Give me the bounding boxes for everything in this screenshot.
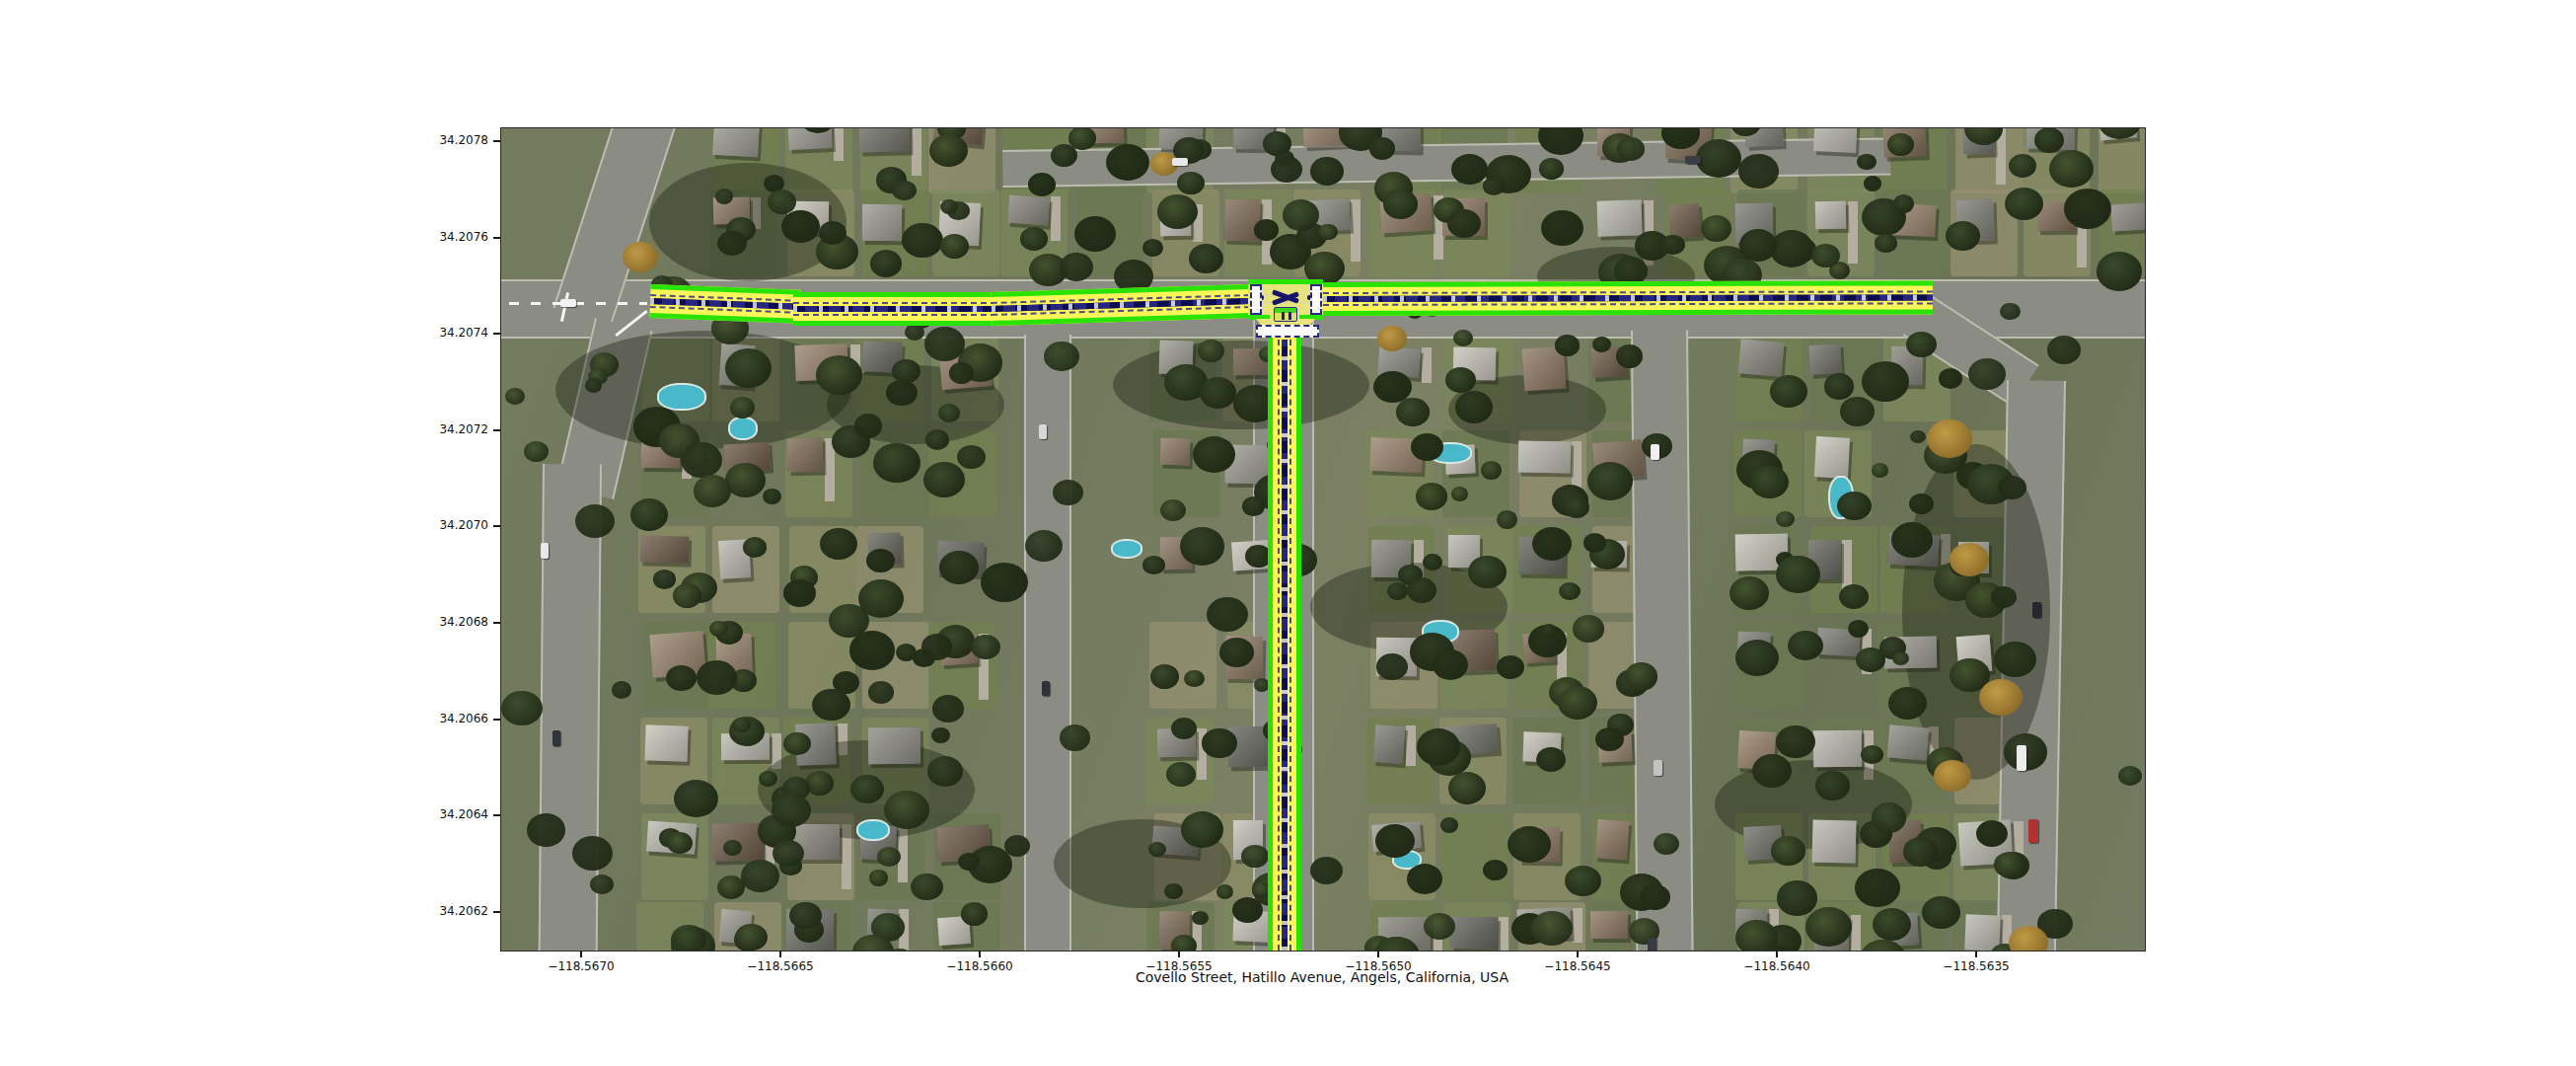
tree <box>1770 375 1807 407</box>
tree <box>1640 884 1669 910</box>
tree <box>849 631 896 670</box>
house-roof <box>1668 203 1701 239</box>
tree <box>2064 189 2111 229</box>
tree <box>820 528 856 560</box>
y-tick-label: 34.2066 <box>400 712 488 725</box>
house-roof <box>1811 820 1856 865</box>
tree <box>1166 762 1196 788</box>
lane-edge-line <box>1289 320 1291 951</box>
autumn-tree <box>1927 419 1972 458</box>
tree <box>1219 638 1254 667</box>
tree <box>1060 724 1090 751</box>
tree <box>1198 340 1224 362</box>
tree <box>1468 556 1507 588</box>
tree <box>1148 842 1166 857</box>
stop-bar-south <box>1256 325 1319 338</box>
swimming-pool <box>856 819 890 841</box>
house-roof <box>1590 910 1628 938</box>
y-tick-mark <box>493 140 500 142</box>
tree <box>1142 239 1163 257</box>
x-tick-mark <box>580 951 582 957</box>
tree <box>812 689 850 722</box>
tree <box>2118 766 2141 786</box>
tree <box>1735 640 1779 676</box>
tree <box>732 718 750 733</box>
tree <box>1565 866 1601 897</box>
tree <box>1424 913 1455 940</box>
tree <box>1207 597 1248 632</box>
tree <box>768 190 796 214</box>
street <box>1631 330 1693 950</box>
house-roof <box>1808 343 1842 375</box>
tree <box>1423 554 1441 570</box>
tree <box>725 463 766 497</box>
x-tick-mark <box>979 951 981 957</box>
tree <box>874 443 920 482</box>
tree <box>850 775 884 803</box>
tree <box>2009 154 2036 178</box>
tree <box>681 442 722 478</box>
tree <box>694 475 732 507</box>
tree <box>1318 224 1337 240</box>
tree <box>725 348 772 388</box>
tree <box>2005 188 2043 220</box>
tree <box>1991 586 2017 608</box>
marker-stroke <box>1282 312 1285 320</box>
tree <box>1416 483 1448 510</box>
tree <box>1750 466 1789 498</box>
car <box>552 730 560 746</box>
house-roof <box>868 727 921 764</box>
tree <box>929 134 968 167</box>
tree <box>1440 817 1459 833</box>
tree <box>630 498 668 530</box>
tree <box>1771 836 1804 865</box>
tree <box>1994 642 2036 678</box>
tree <box>1696 139 1741 178</box>
y-tick-mark <box>493 911 500 913</box>
house-roof <box>639 535 689 563</box>
tree <box>1776 556 1820 593</box>
tree <box>1445 367 1476 393</box>
tree <box>1595 727 1624 752</box>
tree <box>921 634 952 660</box>
tree <box>781 210 820 243</box>
tree <box>1872 463 1889 478</box>
tree <box>971 635 1000 660</box>
y-tick-mark <box>493 814 500 816</box>
house-roof <box>1815 201 1846 230</box>
tree <box>877 847 900 867</box>
tree <box>715 189 733 204</box>
tree <box>612 681 632 699</box>
tree <box>819 221 846 245</box>
road-overlay-covello-west-1 <box>649 284 800 324</box>
tree <box>1497 510 1518 528</box>
road-overlay-hatillo <box>1268 320 1301 951</box>
x-tick-label: −118.5635 <box>1912 959 2040 973</box>
tree <box>1481 461 1503 480</box>
road-overlay-covello-east <box>1323 280 1933 316</box>
house-roof <box>2110 201 2145 231</box>
y-tick-mark <box>493 237 500 239</box>
house-roof <box>1886 724 1928 760</box>
tree <box>868 681 894 704</box>
y-tick-mark <box>493 622 500 624</box>
tree <box>1193 436 1235 473</box>
tree <box>902 223 943 258</box>
tree <box>1541 210 1583 246</box>
tree <box>1587 462 1633 500</box>
tree <box>1157 194 1198 229</box>
tree <box>772 794 812 828</box>
tree <box>1531 911 1573 946</box>
tree <box>501 691 542 725</box>
tree <box>1968 358 2006 390</box>
tree <box>892 359 920 383</box>
tree <box>1946 221 1980 251</box>
swimming-pool <box>728 417 758 440</box>
tree <box>1074 216 1116 252</box>
y-tick-label: 34.2076 <box>400 230 488 244</box>
tree <box>1815 771 1850 799</box>
tree <box>911 874 943 901</box>
tree <box>2047 336 2081 364</box>
tree <box>923 462 965 497</box>
tree <box>1625 662 1657 690</box>
house-roof <box>1964 914 2000 951</box>
driveway <box>1851 915 1861 951</box>
house-roof <box>786 437 823 472</box>
x-tick-mark <box>1377 951 1379 957</box>
tree <box>1106 144 1149 181</box>
tree <box>957 445 986 470</box>
tree <box>585 378 602 392</box>
tree <box>1891 522 1934 558</box>
driveway <box>1573 908 1582 943</box>
tree <box>896 644 917 661</box>
tree <box>1555 335 1580 355</box>
tree <box>940 234 969 259</box>
tree <box>866 549 894 572</box>
tree <box>1559 582 1580 600</box>
driveway <box>1351 199 1361 262</box>
tree <box>667 832 693 854</box>
road-centerline <box>1282 340 1288 951</box>
x-tick-label: −118.5665 <box>716 959 845 973</box>
house-roof <box>1007 194 1050 225</box>
tree <box>1180 527 1224 565</box>
driveway <box>1406 725 1416 766</box>
tree <box>1887 133 1914 156</box>
tree <box>1020 227 1048 251</box>
lane-edge-line <box>1323 302 1933 306</box>
tree <box>1407 577 1437 603</box>
tree <box>1310 157 1343 185</box>
car <box>560 299 576 307</box>
tree <box>1922 896 1959 928</box>
x-tick-label: −118.5655 <box>1115 959 1243 973</box>
driveway <box>1051 196 1061 242</box>
satellite-map <box>501 128 2145 951</box>
x-tick-mark <box>1577 951 1579 957</box>
car <box>1685 156 1701 164</box>
y-tick-mark <box>493 429 500 431</box>
tree <box>981 563 1027 602</box>
tree <box>671 925 706 951</box>
tree <box>886 380 917 407</box>
y-tick-label: 34.2064 <box>400 807 488 821</box>
car <box>1042 681 1050 696</box>
car <box>2017 745 2026 771</box>
tree <box>924 327 965 361</box>
tree <box>1181 811 1223 848</box>
tree <box>575 504 615 538</box>
car <box>1651 444 1659 460</box>
tree <box>1044 342 1079 372</box>
road-centerline <box>793 306 996 312</box>
tree <box>1909 494 1934 514</box>
tree <box>1872 802 1907 832</box>
tree <box>927 756 963 787</box>
tree <box>1573 615 1605 643</box>
tree <box>1202 728 1236 758</box>
road-overlay-covello-west-2 <box>793 292 996 326</box>
house-roof <box>712 128 760 157</box>
tree <box>1068 128 1096 150</box>
house-roof <box>1737 339 1784 377</box>
tree <box>1451 154 1488 185</box>
tree <box>1616 344 1643 367</box>
road-marking <box>509 302 647 305</box>
tree <box>759 771 777 787</box>
tree <box>1417 728 1461 766</box>
driveway <box>1848 201 1858 264</box>
tree <box>1283 199 1319 231</box>
tree <box>1660 235 1684 256</box>
tree <box>789 902 821 929</box>
tree <box>1906 332 1937 358</box>
tree <box>1376 653 1407 680</box>
driveway <box>834 128 844 161</box>
house-roof <box>859 128 911 153</box>
tree <box>1893 194 1915 212</box>
tree <box>1617 137 1645 161</box>
tree <box>1411 433 1443 461</box>
tree <box>961 902 988 925</box>
tree <box>1171 718 1197 739</box>
tree <box>783 579 816 607</box>
tree <box>505 388 525 405</box>
car <box>1172 158 1188 166</box>
driveway <box>1422 347 1432 383</box>
tree <box>1451 487 1468 500</box>
tree <box>572 836 613 871</box>
y-tick-label: 34.2078 <box>400 133 488 147</box>
tree <box>1447 209 1481 238</box>
stop-bar-west <box>1250 284 1262 315</box>
tree <box>1497 655 1524 679</box>
tree <box>1888 687 1927 720</box>
tree <box>1192 911 1209 925</box>
tree <box>958 853 980 872</box>
tree <box>1028 173 1056 196</box>
x-tick-mark <box>1178 951 1180 957</box>
tree <box>1788 631 1822 660</box>
tree <box>763 489 781 504</box>
tree <box>1824 373 1855 399</box>
tree <box>892 181 916 201</box>
tree <box>709 621 727 637</box>
house-roof <box>1594 819 1629 861</box>
house-roof <box>1813 730 1862 768</box>
car <box>1648 938 1656 951</box>
driveway <box>1499 917 1509 951</box>
lane-edge-line <box>1323 290 1933 294</box>
tree <box>931 727 950 743</box>
tree <box>1383 190 1419 219</box>
tree <box>884 791 929 829</box>
tree <box>1433 649 1468 679</box>
y-tick-mark <box>493 525 500 527</box>
tree <box>1730 576 1769 610</box>
tree <box>1242 496 1265 516</box>
car <box>2032 602 2041 618</box>
tree <box>1448 772 1486 803</box>
tree <box>1738 154 1779 189</box>
house-roof <box>645 724 689 762</box>
tree <box>1998 476 2026 499</box>
x-tick-label: −118.5640 <box>1713 959 1841 973</box>
tree <box>697 660 737 695</box>
house-roof <box>1518 441 1571 474</box>
tree <box>949 362 974 383</box>
tree <box>524 441 549 463</box>
x-tick-label: −118.5645 <box>1513 959 1642 973</box>
x-tick-label: −118.5650 <box>1314 959 1442 973</box>
lane-direction-marker <box>1274 307 1297 322</box>
tree <box>590 875 613 894</box>
y-tick-label: 34.2068 <box>400 615 488 629</box>
lane-edge-line <box>793 302 996 304</box>
y-tick-mark <box>493 719 500 721</box>
tree <box>674 780 718 817</box>
tree <box>741 860 779 892</box>
tree <box>1776 511 1795 527</box>
tree <box>1583 533 1606 553</box>
house-roof <box>1813 128 1857 153</box>
tree <box>1862 361 1909 401</box>
swimming-pool <box>657 383 706 411</box>
driveway <box>912 128 921 176</box>
tree <box>1375 824 1415 858</box>
x-tick-label: −118.5670 <box>517 959 645 973</box>
tree <box>1564 496 1589 518</box>
x-tick-mark <box>1776 951 1778 957</box>
tree <box>932 695 964 723</box>
x-tick-label: −118.5660 <box>916 959 1044 973</box>
figure-canvas: Covello Street, Hatillo Avenue, Angels, … <box>0 0 2576 1066</box>
tree <box>1310 857 1343 884</box>
autumn-tree <box>1934 760 1971 792</box>
tree <box>735 924 767 951</box>
autumn-tree <box>1950 543 1989 576</box>
tree <box>1864 176 1881 191</box>
tree <box>1701 215 1731 242</box>
tree <box>870 250 902 276</box>
house-roof <box>1372 724 1405 764</box>
tree <box>925 429 949 450</box>
tree <box>527 813 566 847</box>
tree <box>1160 499 1186 521</box>
lane-edge-line <box>1278 320 1280 951</box>
tree <box>1873 908 1911 941</box>
y-tick-label: 34.2070 <box>400 518 488 532</box>
tree <box>1857 154 1876 171</box>
tree <box>1861 745 1883 764</box>
tree <box>1025 530 1063 562</box>
tree <box>1855 869 1899 907</box>
tree <box>773 840 804 868</box>
stop-bar-east <box>1310 284 1322 315</box>
tree <box>1805 907 1851 946</box>
tree <box>1407 864 1443 894</box>
house-roof <box>1596 200 1642 237</box>
car <box>541 543 549 559</box>
tree <box>1053 480 1083 505</box>
lane-edge-line <box>793 314 996 316</box>
tree <box>1536 747 1566 772</box>
tree <box>1994 852 2024 877</box>
tree <box>1654 833 1679 855</box>
car <box>1654 760 1662 776</box>
map-plot <box>500 127 2146 952</box>
tree <box>1396 398 1430 426</box>
tree <box>1910 430 1926 444</box>
tree <box>939 551 979 584</box>
tree <box>730 397 755 418</box>
house-roof <box>1814 436 1850 478</box>
y-tick-mark <box>493 333 500 335</box>
tree <box>1939 368 1963 389</box>
tree <box>653 570 676 589</box>
tree <box>783 732 811 756</box>
tree <box>1539 158 1564 179</box>
tree <box>1837 492 1871 520</box>
tree <box>1184 670 1205 687</box>
tree <box>2097 252 2143 291</box>
tree <box>1142 556 1165 574</box>
car <box>1039 424 1047 439</box>
tree <box>1840 397 1875 426</box>
tree <box>1848 620 1869 638</box>
tree <box>1271 156 1301 183</box>
road-centerline <box>1323 294 1933 302</box>
x-tick-mark <box>779 951 781 957</box>
autumn-tree <box>623 242 658 272</box>
swimming-pool <box>1111 539 1142 559</box>
house-roof <box>862 204 902 242</box>
tree <box>1241 845 1268 868</box>
marker-stroke <box>1288 312 1291 320</box>
tree <box>829 604 868 638</box>
tree <box>666 665 697 691</box>
tree <box>854 414 883 437</box>
tree <box>1455 391 1494 423</box>
y-tick-label: 34.2074 <box>400 326 488 340</box>
tree <box>816 355 862 395</box>
tree <box>938 404 960 422</box>
